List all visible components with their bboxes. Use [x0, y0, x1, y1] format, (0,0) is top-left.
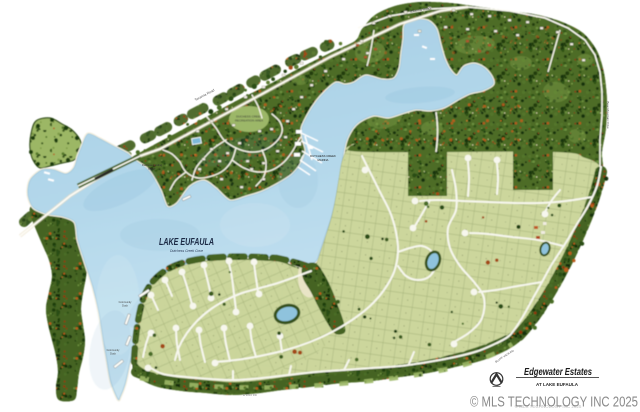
- svg-text:LAKE EUFAULA: LAKE EUFAULA: [159, 237, 214, 248]
- svg-text:E 1210 RD: E 1210 RD: [243, 393, 257, 397]
- svg-text:Bridge: Bridge: [148, 167, 156, 171]
- svg-text:RECREATION AREA: RECREATION AREA: [235, 119, 263, 123]
- svg-text:Duchess Landing: Duchess Landing: [142, 163, 163, 167]
- svg-text:Bear Mountain Drive: Bear Mountain Drive: [606, 101, 610, 129]
- svg-text:AT LAKE EUFAULA: AT LAKE EUFAULA: [536, 382, 579, 387]
- svg-text:Edgewater Estates: Edgewater Estates: [524, 366, 592, 378]
- svg-text:© MLS TECHNOLOGY INC 2025: © MLS TECHNOLOGY INC 2025: [470, 394, 638, 411]
- svg-text:Dock: Dock: [110, 353, 116, 356]
- svg-text:Dutchess Creek Cove: Dutchess Creek Cove: [170, 249, 203, 253]
- svg-text:MARINA: MARINA: [318, 158, 329, 162]
- svg-text:Dock: Dock: [122, 305, 128, 308]
